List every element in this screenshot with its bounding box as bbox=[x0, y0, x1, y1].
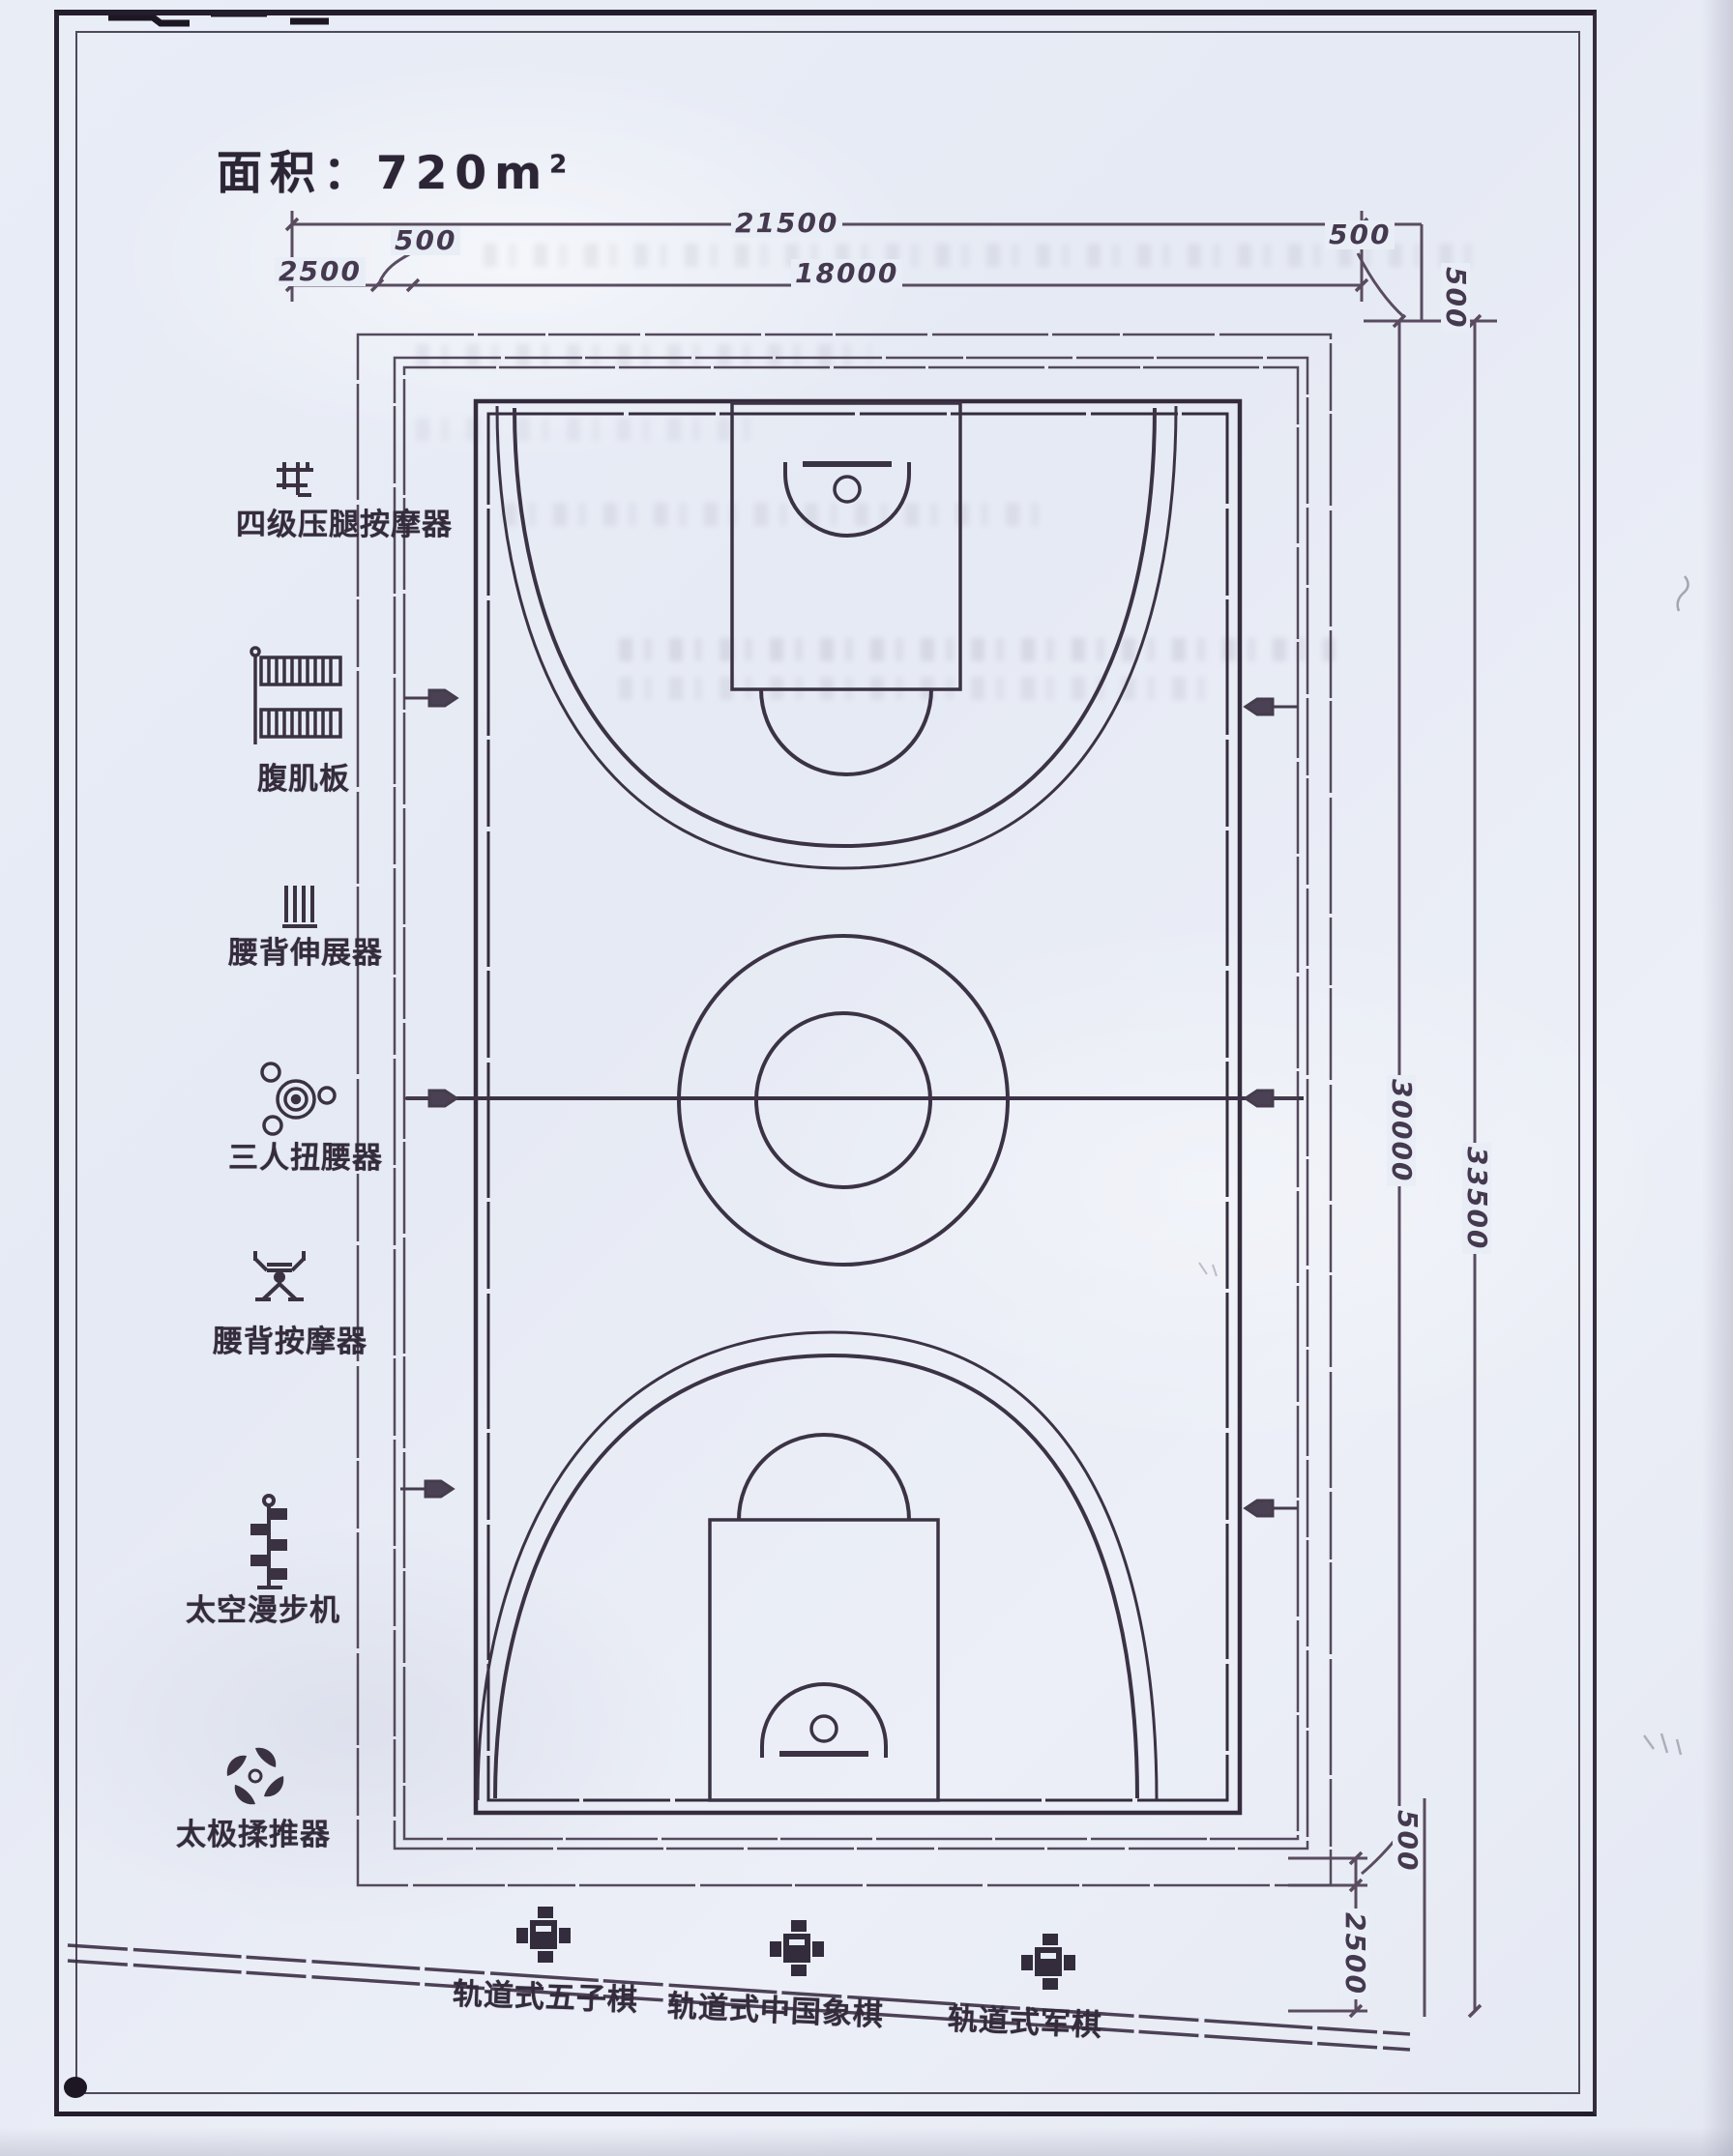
page-edge-shadow bbox=[1702, 0, 1733, 2156]
back-massager-icon bbox=[244, 1245, 315, 1321]
dim-total-height: 33500 bbox=[1462, 1143, 1491, 1254]
page-title: 面积：720m2 bbox=[217, 135, 567, 202]
dim-inner-width: 18000 bbox=[791, 259, 902, 288]
dim-inner-height: 30000 bbox=[1387, 1075, 1416, 1186]
chess-table-icon bbox=[1017, 1932, 1079, 1992]
dim-right-small-h: 500 bbox=[1325, 220, 1395, 249]
back-stretcher-icon bbox=[277, 882, 327, 934]
dim-top-total: 21500 bbox=[731, 209, 842, 238]
area-value: 720m bbox=[376, 147, 549, 200]
scanned-site-plan-page: 面积：720m2 21500 2500 500 18000 500 500 30… bbox=[0, 0, 1733, 2156]
sit-up-board-icon bbox=[246, 644, 348, 752]
equipment-label: 太空漫步机 bbox=[186, 1586, 340, 1629]
equipment-label: 腰背伸展器 bbox=[228, 928, 383, 972]
area-label: 面积： bbox=[217, 147, 376, 200]
leg-press-rack-icon bbox=[269, 456, 321, 503]
air-walker-icon bbox=[248, 1491, 292, 1595]
chess-table-icon bbox=[513, 1905, 574, 1965]
dim-bottom-small: 500 bbox=[1393, 1806, 1422, 1876]
dim-left-offset: 2500 bbox=[275, 257, 366, 286]
waist-twister-icon bbox=[253, 1060, 338, 1139]
chess-table-label: 轨道式五子棋 bbox=[452, 1969, 638, 2020]
equipment-label: 四级压腿按摩器 bbox=[236, 500, 453, 543]
dim-bottom-offset: 2500 bbox=[1340, 1908, 1369, 1999]
scan-blob-artifact bbox=[64, 2077, 87, 2098]
page-edge-shadow bbox=[0, 2127, 1733, 2156]
area-exponent: 2 bbox=[549, 150, 567, 179]
dim-right-small-v: 500 bbox=[1441, 263, 1470, 333]
equipment-label: 太极揉推器 bbox=[176, 1810, 331, 1853]
chess-table-icon bbox=[766, 1918, 828, 1978]
chess-table-label: 轨道式军棋 bbox=[947, 1995, 1103, 2045]
taiji-wheel-icon bbox=[224, 1744, 286, 1808]
equipment-label: 腰背按摩器 bbox=[213, 1317, 367, 1360]
equipment-label: 腹肌板 bbox=[257, 754, 350, 798]
dim-left-small: 500 bbox=[391, 226, 460, 255]
equipment-label: 三人扭腰器 bbox=[228, 1133, 383, 1177]
